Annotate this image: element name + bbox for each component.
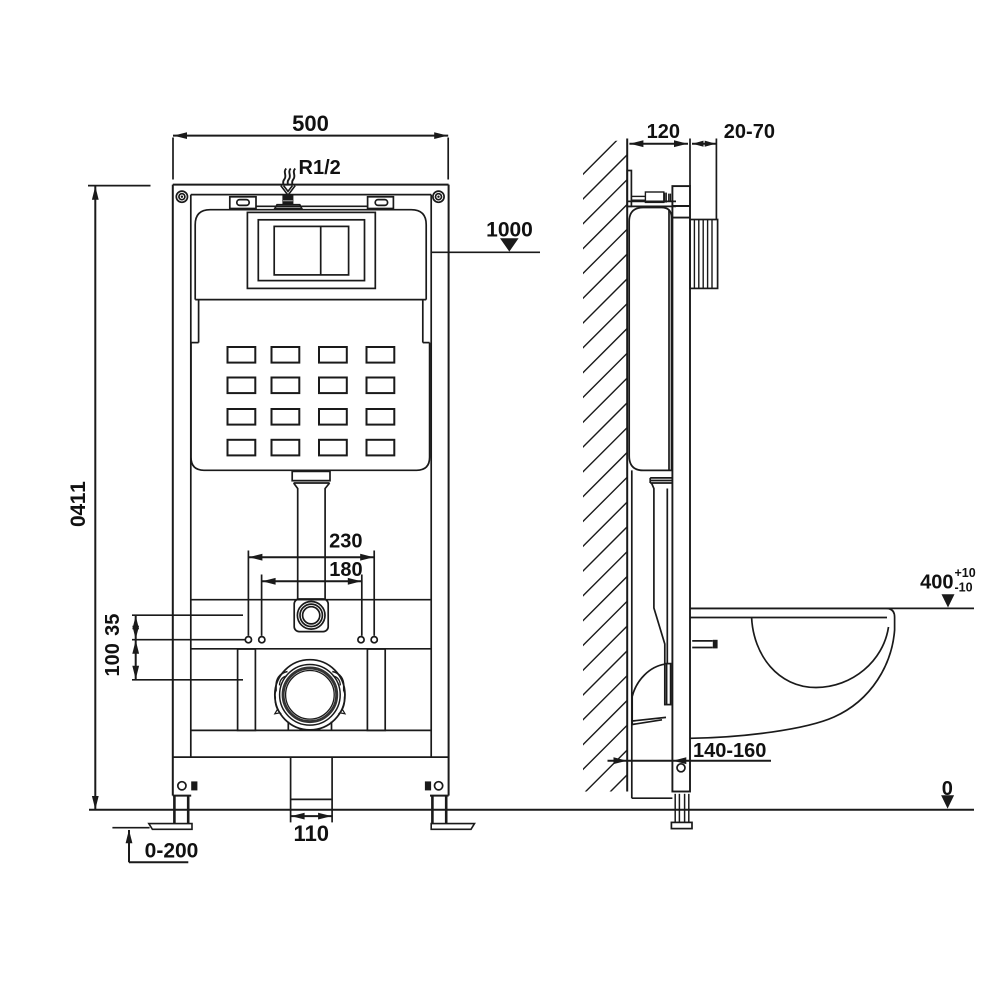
svg-text:1: 1 [67, 492, 90, 504]
svg-text:0-200: 0-200 [145, 840, 199, 863]
svg-text:4: 4 [67, 504, 90, 516]
svg-text:35: 35 [102, 614, 124, 636]
svg-text:100: 100 [102, 643, 124, 676]
svg-text:120: 120 [647, 121, 680, 143]
svg-text:500: 500 [292, 111, 329, 136]
svg-text:230: 230 [329, 531, 362, 553]
svg-text:180: 180 [329, 559, 362, 581]
svg-text:-10: -10 [955, 581, 973, 595]
svg-text:110: 110 [294, 821, 330, 846]
svg-text:20-70: 20-70 [724, 121, 775, 143]
svg-text:1000: 1000 [486, 219, 533, 242]
svg-text:140-160: 140-160 [693, 740, 766, 762]
svg-text:400: 400 [920, 572, 953, 594]
svg-text:1: 1 [67, 481, 90, 493]
svg-text:+10: +10 [955, 566, 976, 580]
svg-text:R1/2: R1/2 [299, 157, 341, 179]
svg-text:0: 0 [67, 515, 90, 527]
